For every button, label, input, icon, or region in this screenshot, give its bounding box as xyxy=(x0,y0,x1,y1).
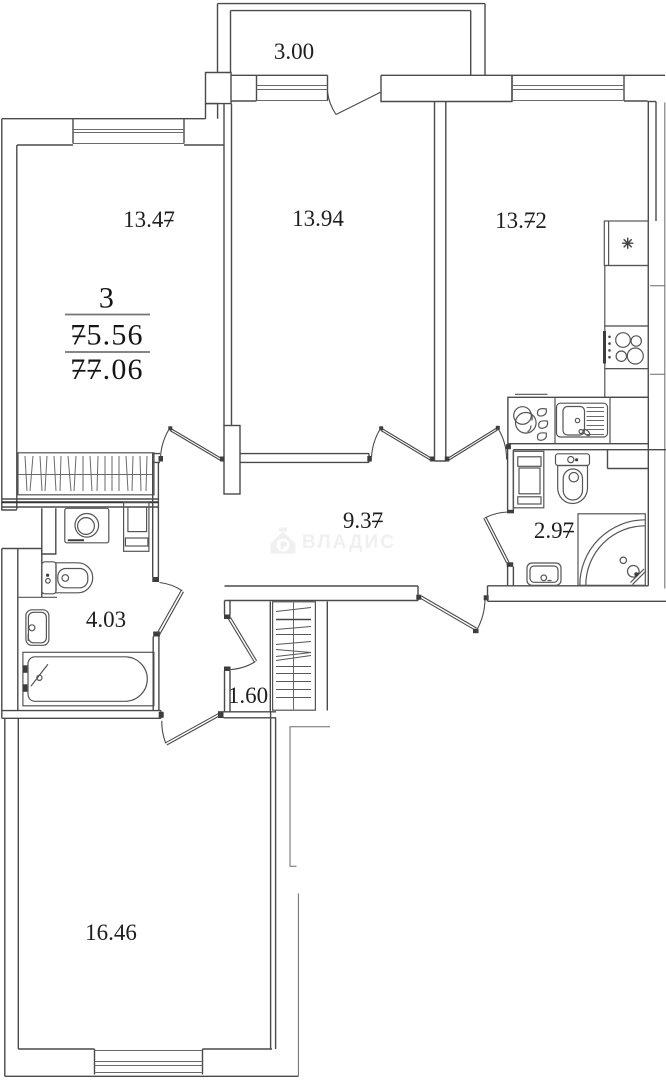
svg-text:ВЛАДИС: ВЛАДИС xyxy=(302,532,396,553)
svg-text:9.37: 9.37 xyxy=(343,508,383,533)
svg-text:4.03: 4.03 xyxy=(86,607,126,632)
svg-text:13.94: 13.94 xyxy=(292,206,344,231)
svg-text:2.97: 2.97 xyxy=(534,518,574,543)
svg-text:77.06: 77.06 xyxy=(70,353,144,386)
svg-text:13.47: 13.47 xyxy=(123,207,175,232)
svg-text:3.00: 3.00 xyxy=(274,39,314,64)
svg-text:13.72: 13.72 xyxy=(495,208,547,233)
svg-text:3: 3 xyxy=(99,282,115,315)
svg-text:1.60: 1.60 xyxy=(228,683,268,708)
svg-text:75.56: 75.56 xyxy=(70,319,144,352)
svg-text:16.46: 16.46 xyxy=(85,920,137,945)
